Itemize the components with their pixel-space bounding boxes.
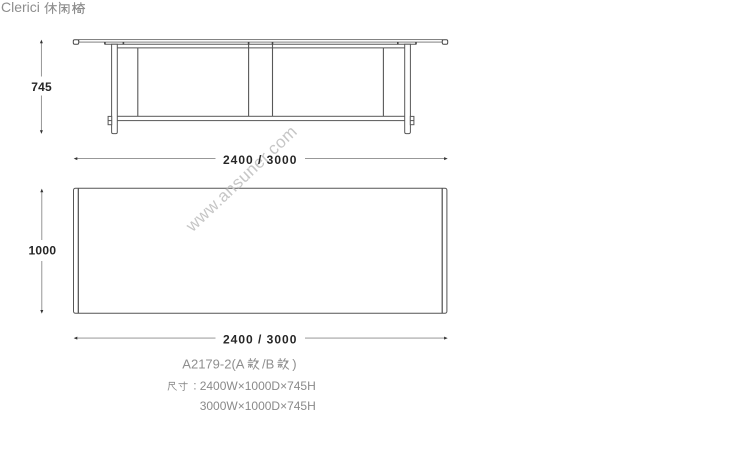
svg-text:/B: /B — [262, 356, 274, 371]
svg-text:2400 / 3000: 2400 / 3000 — [223, 153, 297, 167]
svg-text:3000W×1000D×745H: 3000W×1000D×745H — [200, 399, 316, 413]
svg-text:2400W×1000D×745H: 2400W×1000D×745H — [200, 379, 316, 393]
svg-text::: : — [193, 378, 196, 392]
svg-text:1000: 1000 — [28, 243, 56, 257]
svg-text:745: 745 — [31, 80, 52, 94]
svg-text:Clerici: Clerici — [1, 0, 40, 15]
svg-text:A2179-2(A: A2179-2(A — [182, 356, 244, 371]
svg-text:2400 / 3000: 2400 / 3000 — [223, 332, 297, 346]
svg-text:): ) — [292, 356, 296, 371]
